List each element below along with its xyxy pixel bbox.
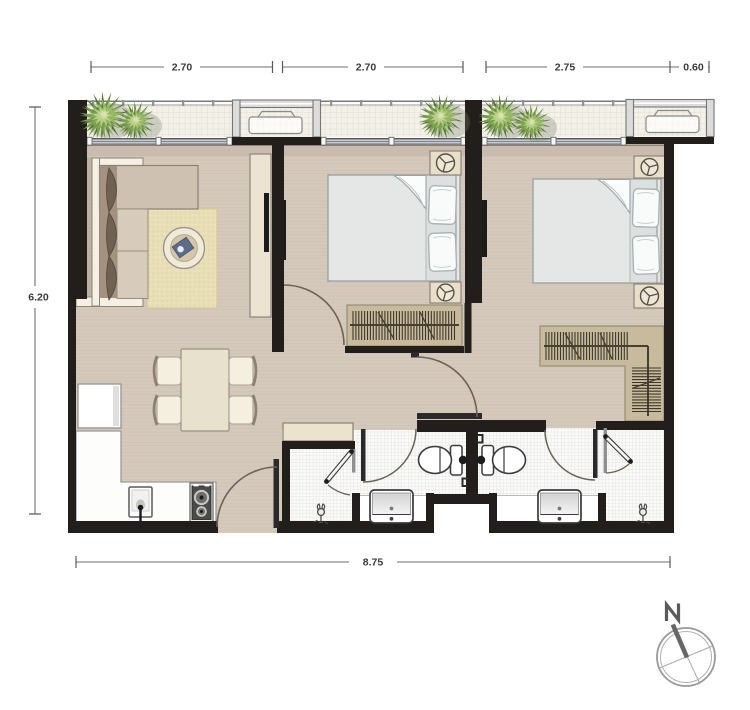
svg-text:8.75: 8.75 [363, 557, 384, 569]
svg-text:0.60: 0.60 [683, 62, 704, 74]
svg-text:2.70: 2.70 [356, 62, 377, 74]
svg-text:2.75: 2.75 [555, 62, 576, 74]
svg-text:6.20: 6.20 [28, 292, 49, 304]
svg-text:2.70: 2.70 [172, 62, 193, 74]
